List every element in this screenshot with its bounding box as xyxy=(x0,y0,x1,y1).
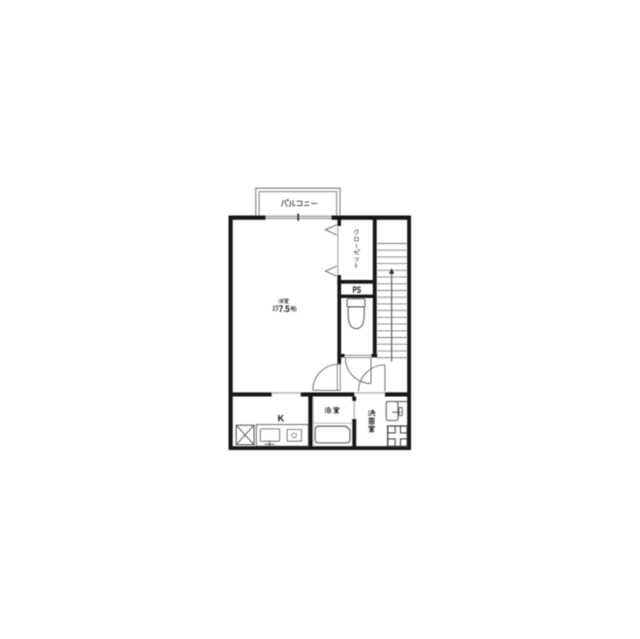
svg-text:7.5: 7.5 xyxy=(279,304,290,314)
svg-text:K: K xyxy=(278,413,285,423)
svg-text:PS: PS xyxy=(353,285,362,295)
